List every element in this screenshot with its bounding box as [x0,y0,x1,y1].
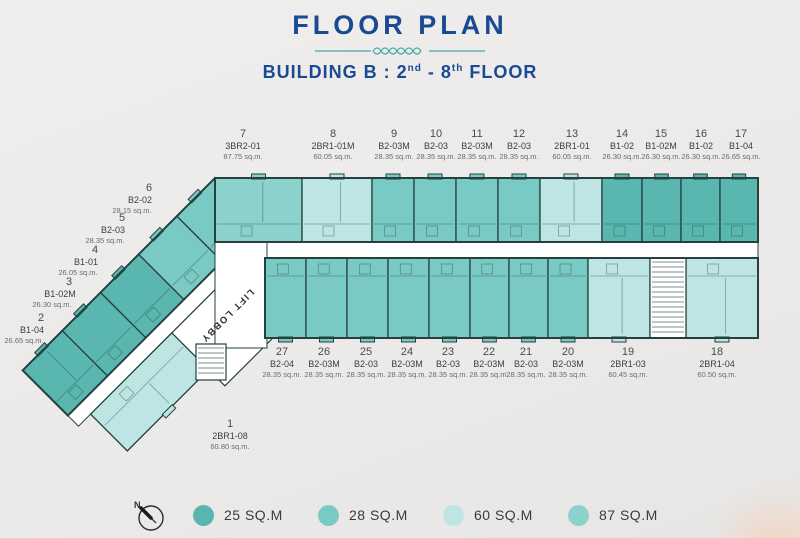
unit-code: B1-01 [44,257,128,268]
legend-label-28: 28 SQ.M [349,507,408,523]
unit-code: B2-02 [98,195,182,206]
page-root: FLOOR PLAN BUILDING B : 2nd - 8th FLOOR … [0,0,800,538]
legend-dot-25 [193,505,214,526]
unit-shape [540,178,602,242]
legend-dot-60 [443,505,464,526]
legend-dot-28 [318,505,339,526]
unit-label: 17B1-0426.65 sq.m. [699,128,783,162]
unit-label: 73BR2-0187.75 sq.m. [201,128,285,162]
unit-area: 26.65 sq.m. [0,336,66,346]
unit-shape [720,178,758,242]
unit-shape [429,258,470,338]
unit-shape [306,258,347,338]
legend-item-60: 60 SQ.M [443,503,533,527]
legend-item-87: 87 SQ.M [568,503,658,527]
unit-label: 3B1-02M26.30 sq.m. [18,276,102,310]
unit-label: 6B2-0228.15 sq.m. [98,182,182,216]
unit-label: 2B1-0426.65 sq.m. [0,312,74,346]
stairwell [650,258,686,338]
unit-code: B1-04 [699,141,783,152]
unit-area: 26.05 sq.m. [36,268,120,278]
unit-shape [456,178,498,242]
unit-number: 27 [240,346,324,359]
unit-shape [215,178,302,242]
unit-code: B2-04 [240,359,324,370]
unit-number: 2 [0,312,83,325]
legend-item-25: 25 SQ.M [193,503,283,527]
unit-number: 6 [107,182,191,195]
unit-shape [548,258,588,338]
unit-area: 87.75 sq.m. [201,152,285,162]
unit-number: 1 [188,418,272,431]
unit-shape [470,258,509,338]
unit-label: 27B2-0428.35 sq.m. [240,346,324,380]
unit-shape [681,178,720,242]
corridor [215,242,758,258]
unit-shape [498,178,540,242]
unit-code: 2BR1-04 [675,359,759,370]
unit-area: 60.50 sq.m. [675,370,759,380]
unit-code: B2-03 [71,225,155,236]
unit-number: 18 [675,346,759,359]
unit-label: 182BR1-0460.50 sq.m. [675,346,759,380]
unit-area: 28.35 sq.m. [63,236,147,246]
unit-shape [388,258,429,338]
unit-shape [302,178,372,242]
unit-code: 2BR1-08 [188,431,272,442]
unit-shape [509,258,548,338]
legend-item-28: 28 SQ.M [318,503,408,527]
unit-number: 17 [699,128,783,141]
stairwell [196,344,226,380]
unit-shape [265,258,306,338]
unit-number: 7 [201,128,285,141]
unit-label: 5B2-0328.35 sq.m. [71,212,155,246]
unit-shape [347,258,388,338]
unit-shape [602,178,642,242]
unit-shape [414,178,456,242]
unit-shape [686,258,758,338]
north-compass-icon: N [128,497,172,535]
unit-label: 12BR1-0860.80 sq.m. [188,418,272,452]
unit-area: 28.15 sq.m. [90,206,174,216]
unit-label: 4B1-0126.05 sq.m. [44,244,128,278]
unit-shape [588,258,650,338]
unit-area: 28.35 sq.m. [240,370,324,380]
legend-label-87: 87 SQ.M [599,507,658,523]
unit-code: 3BR2-01 [201,141,285,152]
unit-area: 26.30 sq.m. [10,300,94,310]
legend-label-60: 60 SQ.M [474,507,533,523]
unit-area: 26.65 sq.m. [699,152,783,162]
unit-shape [642,178,681,242]
legend-label-25: 25 SQ.M [224,507,283,523]
unit-code: B1-02M [18,289,102,300]
legend-dot-87 [568,505,589,526]
unit-code: B1-04 [0,325,74,336]
unit-area: 60.80 sq.m. [188,442,272,452]
unit-shape [372,178,414,242]
